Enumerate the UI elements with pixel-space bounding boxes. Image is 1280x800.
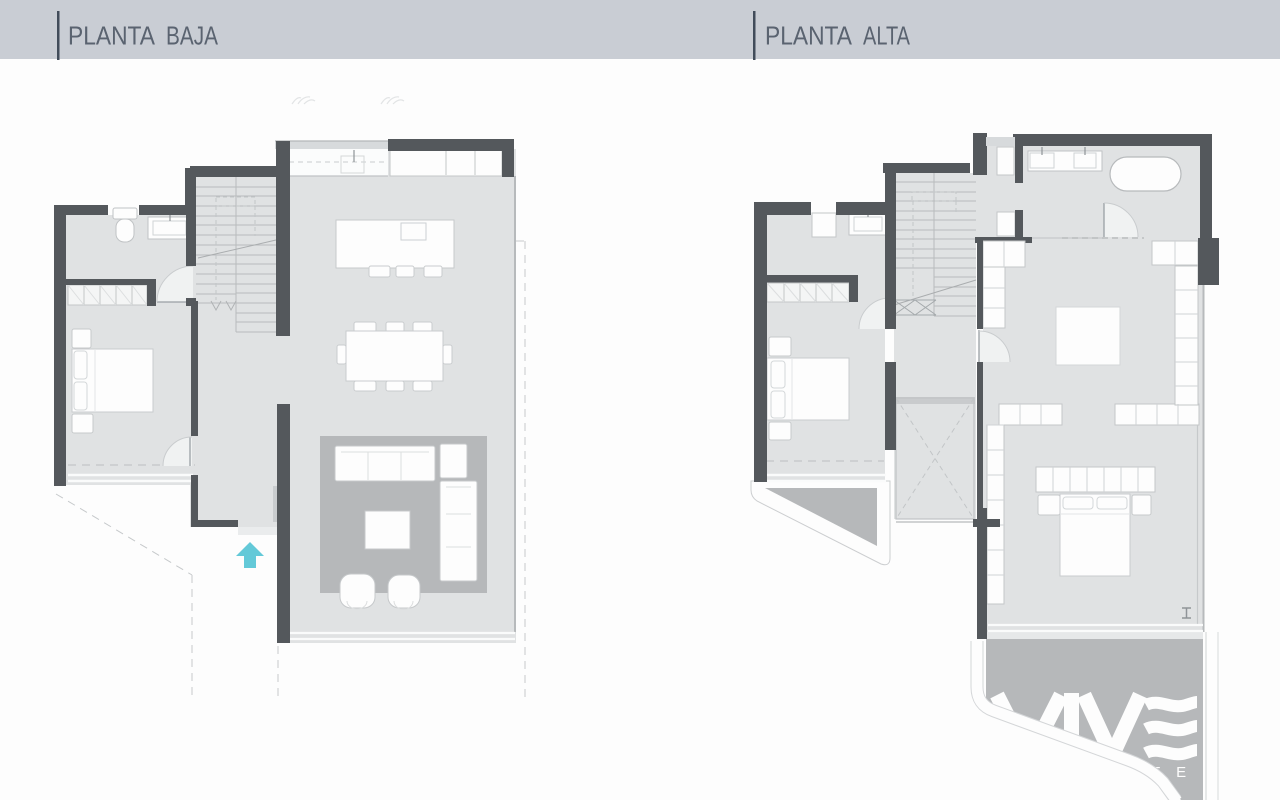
svg-text:PLANTA: PLANTA (765, 21, 853, 51)
svg-text:PLANTA: PLANTA (68, 21, 156, 51)
svg-text:BAJA: BAJA (166, 21, 219, 51)
svg-text:ALTA: ALTA (863, 21, 911, 51)
